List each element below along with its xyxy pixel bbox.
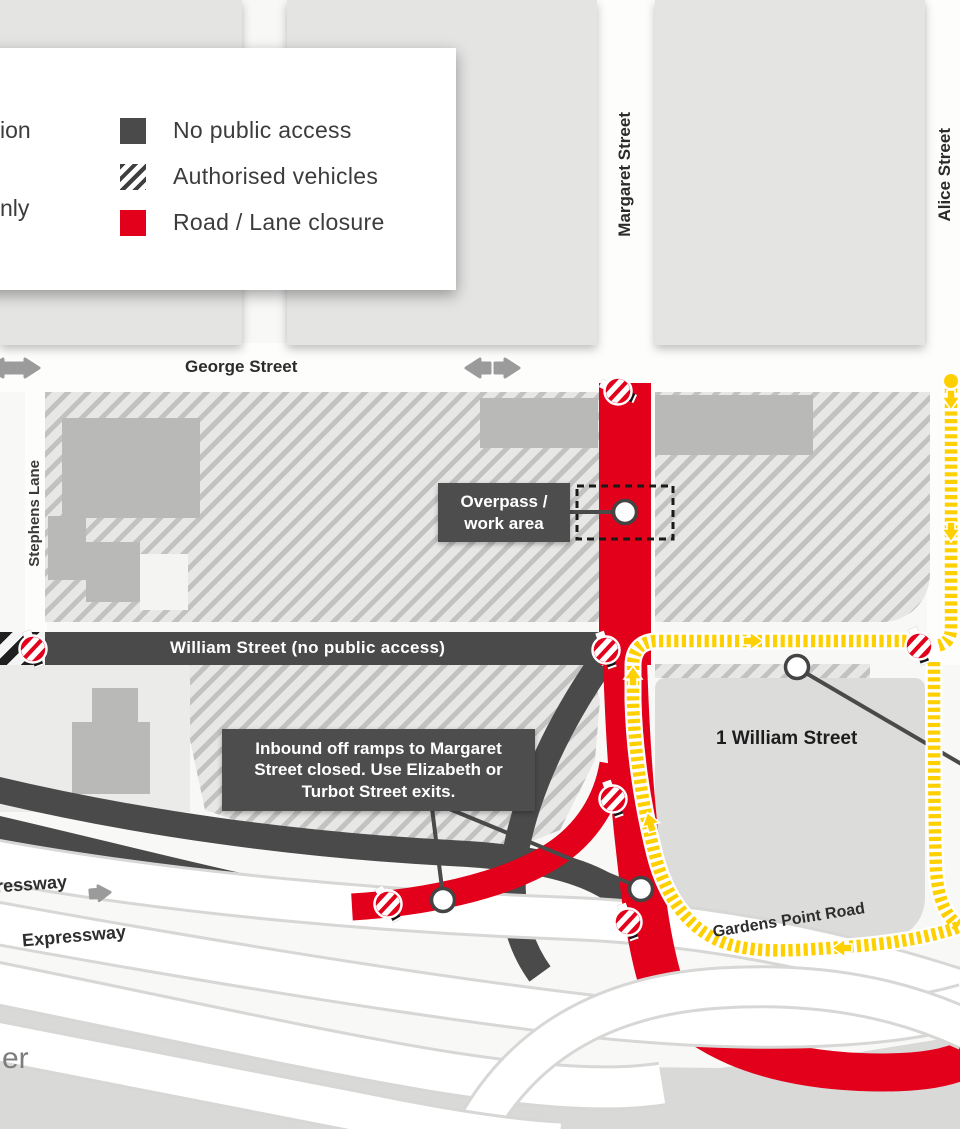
one-william-street-label: 1 William Street [716, 728, 857, 750]
william-street-label: William Street (no public access) [170, 638, 445, 658]
legend-label: Road / Lane closure [173, 209, 385, 236]
legend: No public access Authorised vehicles Roa… [0, 48, 456, 290]
legend-swatch-no-public-access-icon [120, 118, 146, 144]
legend-swatch-road-lane-closure-icon [120, 210, 146, 236]
legend-label: Authorised vehicles [173, 163, 378, 190]
road-closure-map: George Street Margaret Street Alice Stre… [0, 0, 960, 1129]
margaret-street-label: Margaret Street [615, 112, 635, 237]
legend-swatch-authorised-vehicles-icon [120, 164, 146, 190]
stephens-lane-label: Stephens Lane [26, 460, 43, 567]
legend-cut-label: nly [0, 195, 29, 222]
legend-label: No public access [173, 117, 352, 144]
river-label-fragment: er [2, 1042, 29, 1076]
george-street-label: George Street [185, 357, 297, 377]
overpass-callout: Overpass / work area [438, 483, 570, 542]
inbound-ramps-callout: Inbound off ramps to Margaret Street clo… [222, 729, 535, 811]
alice-street-label: Alice Street [935, 128, 955, 222]
legend-cut-label: ion [0, 117, 31, 144]
